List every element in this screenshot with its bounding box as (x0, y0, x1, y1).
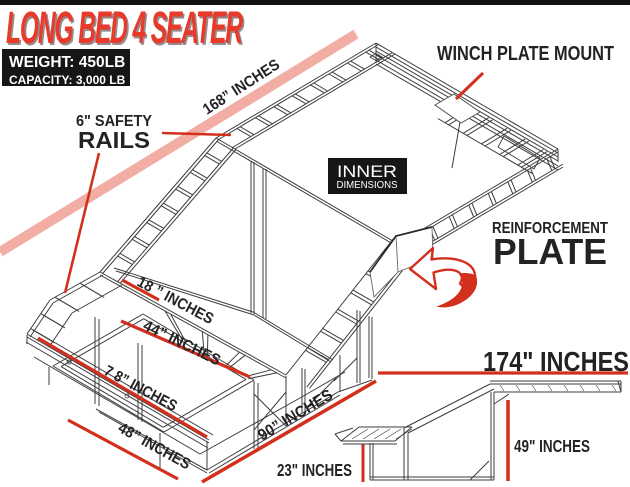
svg-text:23" INCHES: 23" INCHES (277, 460, 352, 480)
svg-text:INNER: INNER (337, 162, 397, 181)
svg-text:PLATE: PLATE (493, 231, 607, 272)
svg-text:44” INCHES: 44” INCHES (140, 317, 223, 369)
svg-text:RAILS: RAILS (78, 127, 150, 153)
svg-text:49" INCHES: 49" INCHES (514, 436, 590, 456)
svg-text:174" INCHES: 174" INCHES (483, 346, 629, 377)
svg-text:7 8” INCHES: 7 8” INCHES (101, 363, 180, 416)
svg-text:DIMENSIONS: DIMENSIONS (337, 180, 398, 191)
svg-text:90” INCHES: 90” INCHES (255, 386, 336, 444)
svg-text:WINCH PLATE MOUNT: WINCH PLATE MOUNT (437, 43, 614, 65)
